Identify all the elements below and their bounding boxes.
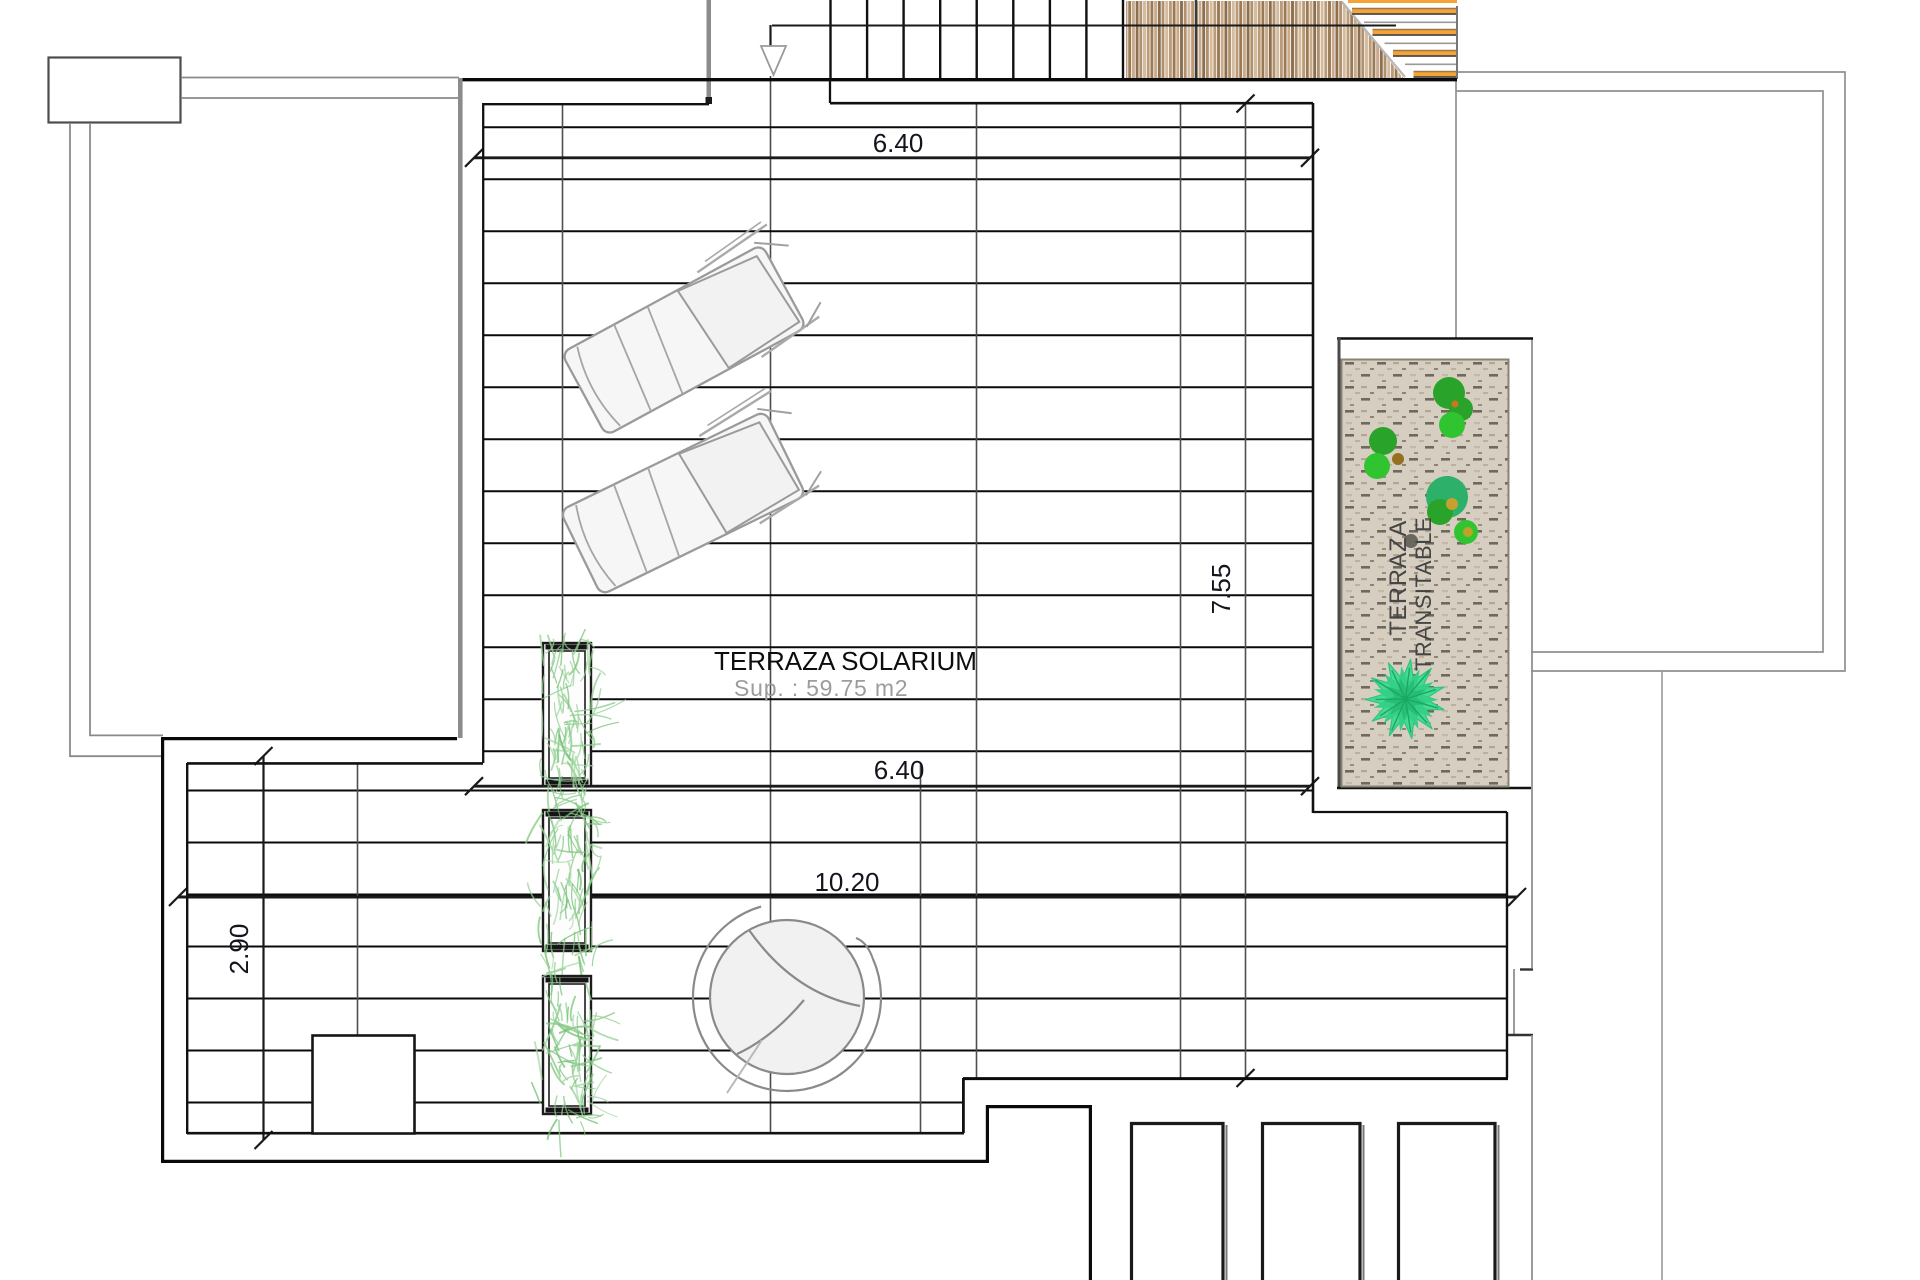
svg-text:7.55: 7.55 — [1206, 564, 1236, 615]
svg-text:10.20: 10.20 — [814, 867, 879, 897]
svg-text:TRANSITABLE: TRANSITABLE — [1411, 517, 1436, 671]
svg-text:TERRAZA: TERRAZA — [1385, 520, 1412, 636]
svg-text:TERRAZA SOLARIUM: TERRAZA SOLARIUM — [714, 646, 977, 676]
svg-text:2.90: 2.90 — [224, 924, 254, 975]
svg-text:Sup. : 59.75 m2: Sup. : 59.75 m2 — [734, 675, 908, 701]
svg-text:6.40: 6.40 — [874, 755, 925, 785]
svg-text:6.40: 6.40 — [873, 128, 924, 158]
